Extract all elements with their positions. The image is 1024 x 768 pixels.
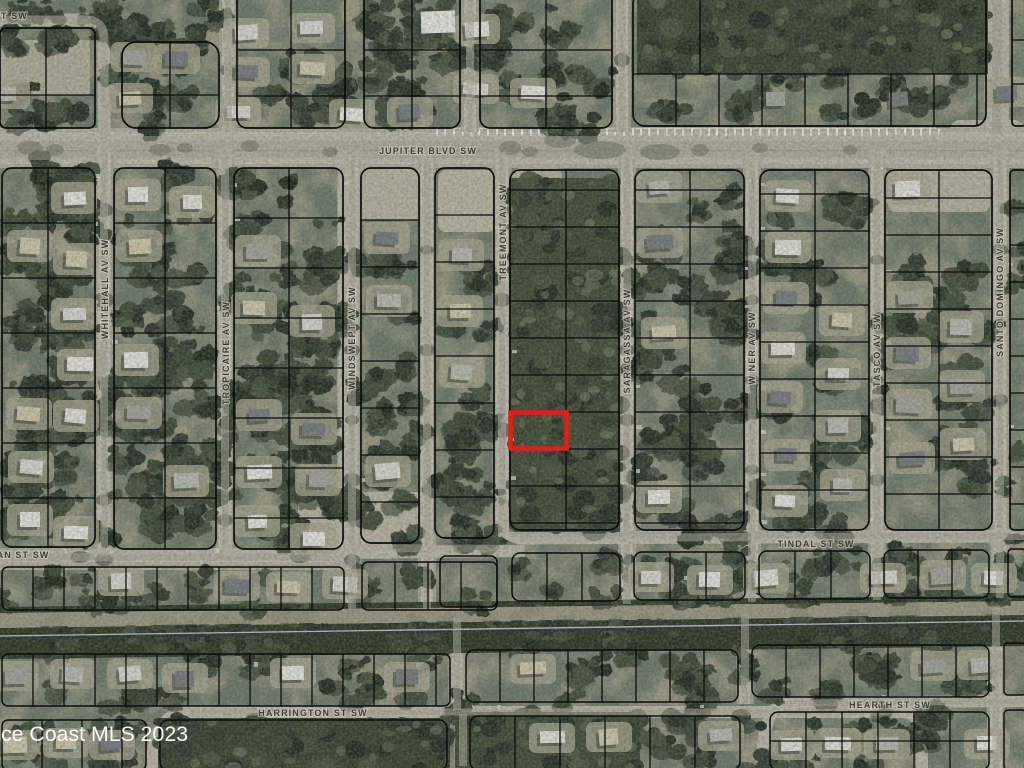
- svg-text:HEARTH ST SW: HEARTH ST SW: [849, 700, 931, 710]
- svg-text:T SW: T SW: [1, 11, 28, 21]
- svg-text:TROPICAIRE AV SW: TROPICAIRE AV SW: [221, 301, 231, 405]
- svg-text:ce Coast MLS 2023: ce Coast MLS 2023: [1, 722, 188, 746]
- svg-text:TREEMONT AV SW: TREEMONT AV SW: [498, 184, 508, 281]
- svg-text:SANTO DOMINGO AV SW: SANTO DOMINGO AV SW: [995, 227, 1005, 357]
- svg-text:SARAGASSA AV SW: SARAGASSA AV SW: [622, 289, 632, 394]
- svg-text:W NER AV SW: W NER AV SW: [747, 311, 757, 384]
- svg-text:WINDSWEPT AV SW: WINDSWEPT AV SW: [347, 286, 357, 390]
- svg-text:TASCO AV SW: TASCO AV SW: [872, 313, 882, 387]
- svg-text:HARRINGTON ST SW: HARRINGTON ST SW: [258, 708, 367, 718]
- svg-text:TINDAL ST SW: TINDAL ST SW: [777, 539, 854, 549]
- svg-text:JUPITER BLVD SW: JUPITER BLVD SW: [379, 146, 477, 156]
- svg-text:WHITEHALL AV SW: WHITEHALL AV SW: [100, 239, 110, 339]
- svg-text:MAN ST SW: MAN ST SW: [0, 550, 49, 560]
